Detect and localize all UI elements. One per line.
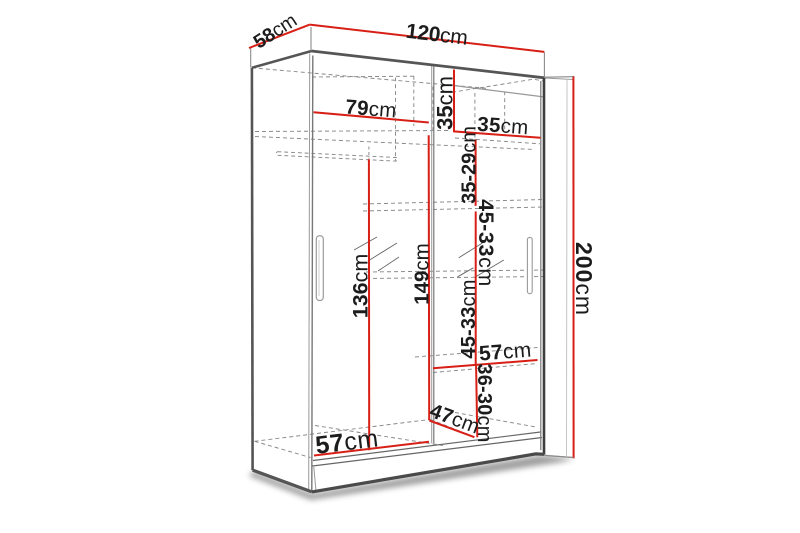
svg-text:57cm: 57cm (478, 338, 532, 365)
svg-text:35cm: 35cm (432, 76, 457, 130)
svg-text:136cm: 136cm (348, 254, 372, 319)
svg-text:200cm: 200cm (571, 242, 597, 316)
svg-text:45-33cm: 45-33cm (458, 279, 480, 358)
svg-text:35-29cm: 35-29cm (458, 126, 480, 204)
svg-text:79cm: 79cm (345, 95, 398, 122)
svg-text:35cm: 35cm (477, 113, 530, 140)
svg-text:120cm: 120cm (405, 20, 469, 50)
svg-text:58cm: 58cm (250, 9, 301, 53)
svg-text:149cm: 149cm (410, 243, 433, 305)
svg-text:45-33cm: 45-33cm (474, 199, 498, 287)
